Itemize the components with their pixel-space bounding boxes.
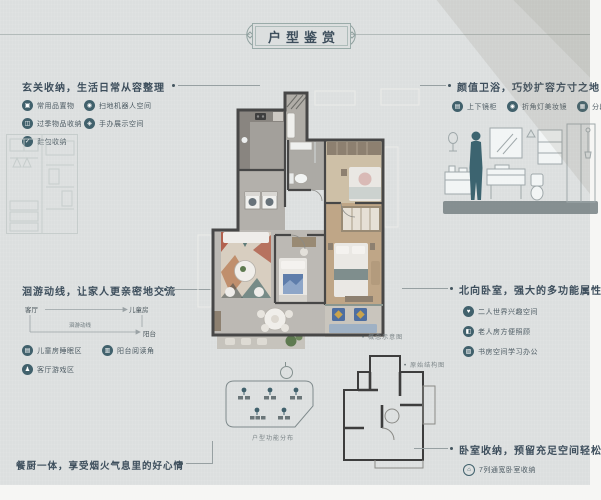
floorplan-poster: 户型鉴赏 玄关收纳，生活日常从容整理 ▣ 常用品置物 ◉ 扫地机器人空间 ◫ 过… [0,0,601,500]
feature-label: 客厅游戏区 [37,365,75,375]
dining-leader-dot [180,462,183,465]
function-badge [222,378,322,430]
bath-feature-list: ▤ 上下镜柜 ◉ 折角灯美妆镜 ▦ 分段式收纳 [452,101,601,112]
function-caption: 户型功能分布 [252,433,294,442]
flow-leader-dot [164,288,167,291]
feature-label: 过季物品收纳 [37,119,82,129]
feature-label: 老人房方便照顾 [478,327,531,337]
book-icon: ▥ [102,345,113,356]
north-bedroom-leader-dot [450,287,453,290]
north-bedroom-heading: 北向卧室，强大的多功能属性 [459,282,601,297]
bathroom-illustration [443,122,598,217]
game-icon: ♟ [22,364,33,375]
bath-leader-dot [448,84,451,87]
flow-node-living: 客厅 [25,305,39,314]
feature-label: 分段式收纳 [592,102,601,112]
feature-label: 折角灯美妆镜 [522,102,567,112]
concept-caption: •概念示意图 [362,332,403,341]
floor-plan-rendering [195,85,425,350]
flow-diagram: 客厅 儿童房 阳台 洄游动线 [25,303,175,343]
entry-section-heading: 玄关收纳，生活日常从容整理 [22,79,165,94]
seasonal-storage-icon: ◫ [22,118,33,129]
bedroom-storage-heading: 卧室收纳，预留充足空间轻松换季 [459,442,601,457]
couple-icon: ♥ [463,306,474,317]
makeup-mirror-icon: ◉ [507,101,518,112]
flow-feature-list: ▤ 儿童房睡眠区 ▥ 阳台阅读角 ♟ 客厅游戏区 [22,345,172,375]
page-title: 户型鉴赏 [263,27,340,46]
list-item: ♥ 二人世界兴趣空间 [463,306,538,317]
list-item: ◈ 手办展示空间 [84,118,174,129]
bed-icon: ▤ [22,345,33,356]
feature-label: 儿童房睡眠区 [37,346,82,356]
wardrobe-illustration [5,133,80,236]
page-title-frame: 户型鉴赏 [252,23,351,49]
feature-label: 二人世界兴趣空间 [478,307,538,317]
poster-panel: 户型鉴赏 玄关收纳，生活日常从容整理 ▣ 常用品置物 ◉ 扫地机器人空间 ◫ 过… [0,0,590,485]
figurine-display-icon: ◈ [84,118,95,129]
bath-leader-line [420,85,446,86]
flow-path-label: 洄游动线 [69,321,92,329]
feature-label: 手办展示空间 [99,119,144,129]
list-item: ◧ 老人房方便照顾 [463,326,538,337]
list-item: ♟ 客厅游戏区 [22,364,102,375]
caption-bullet: • [404,363,407,369]
feature-label: 扫地机器人空间 [99,101,152,111]
elder-care-icon: ◧ [463,326,474,337]
caption-text: 概念示意图 [368,335,403,341]
wardrobe-icon: ⌂ [463,464,475,476]
dining-leader-line-vertical [212,441,213,464]
sectional-storage-icon: ▦ [577,101,588,112]
entry-leader-dot [172,84,175,87]
caption-bullet: • [362,335,365,341]
feature-label: 7列通宽卧室收纳 [479,465,536,475]
flow-node-balcony: 阳台 [143,329,156,338]
caption-text: 原始结构图 [410,363,445,369]
bath-section-heading: 颜值卫浴，巧妙扩容方寸之地 [457,79,600,94]
dining-section-heading: 餐厨一体，享受烟火气息里的好心情 [16,458,184,472]
feature-label: 阳台阅读角 [117,346,155,356]
list-item: ▤ 上下镜柜 [452,101,497,112]
list-item: ◉ 扫地机器人空间 [84,100,174,111]
feature-label: 书房空间学习办公 [478,347,538,357]
bedroom-storage-leader-line [414,448,448,449]
title-rule-left [0,34,250,35]
storage-box-icon: ▣ [22,100,33,111]
flow-section-heading: 洄游动线，让家人更亲密地交流 [22,283,176,298]
flow-node-child: 儿童房 [129,305,149,314]
structure-caption: •原始结构图 [404,360,445,369]
list-item: ⌂ 7列通宽卧室收纳 [463,464,536,476]
list-item: ▨ 书房空间学习办公 [463,346,538,357]
list-item: ▦ 分段式收纳 [577,101,601,112]
dining-leader-line [186,463,212,464]
feature-label: 常用品置物 [37,101,75,111]
bedroom-storage-leader-dot [450,447,453,450]
list-item: ▣ 常用品置物 [22,100,84,111]
north-bedroom-feature-list: ♥ 二人世界兴趣空间 ◧ 老人房方便照顾 ▨ 书房空间学习办公 [463,306,538,357]
study-desk-icon: ▨ [463,346,474,357]
list-item: ▤ 儿童房睡眠区 [22,345,102,356]
mirror-cabinet-icon: ▤ [452,101,463,112]
robot-vacuum-icon: ◉ [84,100,95,111]
list-item: ◫ 过季物品收纳 [22,118,84,129]
title-rule-right [351,34,590,35]
list-item: ◉ 折角灯美妆镜 [507,101,567,112]
north-bedroom-leader-line [402,288,448,289]
feature-label: 上下镜柜 [467,102,497,112]
list-item: ▥ 阳台阅读角 [102,345,172,356]
